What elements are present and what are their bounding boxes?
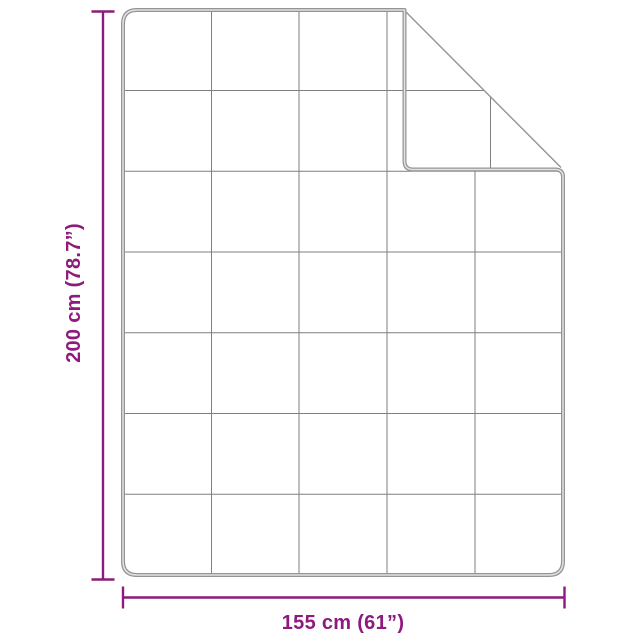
width-dimension-line <box>123 587 565 609</box>
width-dimension-label: 155 cm (61”) <box>223 611 463 635</box>
height-dimension-line <box>92 12 115 580</box>
fold-crease-line <box>406 12 561 168</box>
blanket-outline-highlight <box>123 10 563 575</box>
blanket-outline <box>123 10 563 575</box>
dimension-diagram: 200 cm (78.7”) 155 cm (61”) <box>0 0 640 640</box>
blanket-line-art <box>0 0 640 640</box>
height-dimension-label: 200 cm (78.7”) <box>62 181 86 405</box>
grid-lines <box>123 10 563 575</box>
